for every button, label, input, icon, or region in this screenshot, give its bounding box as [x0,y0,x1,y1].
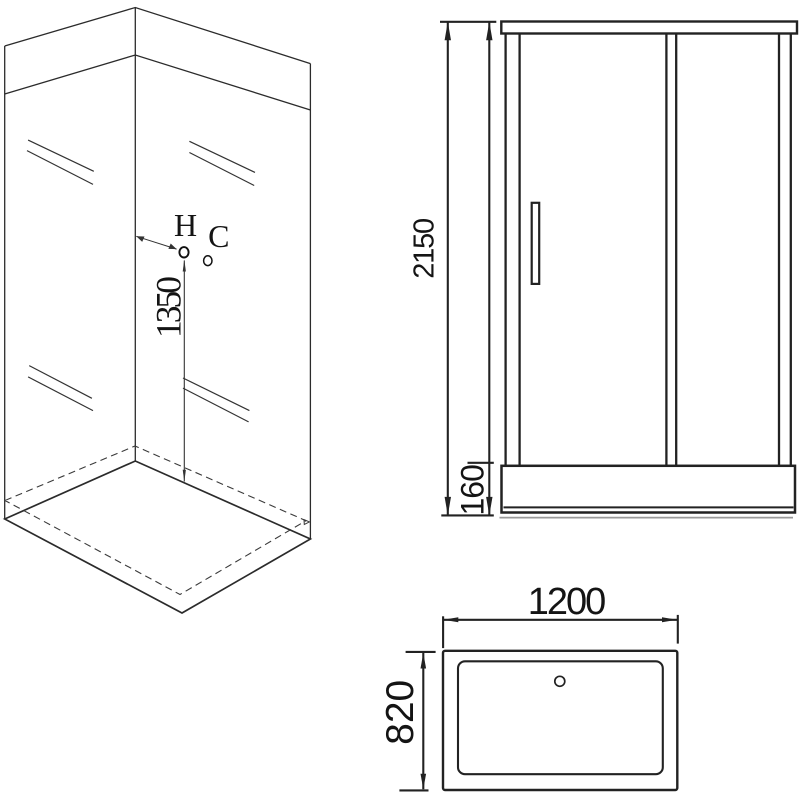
svg-text:1350: 1350 [149,277,189,338]
svg-text:2150: 2150 [409,219,441,279]
svg-text:H: H [174,207,197,243]
svg-text:1200: 1200 [528,581,605,623]
svg-text:820: 820 [379,680,422,745]
svg-text:C: C [208,218,229,254]
svg-text:160: 160 [455,465,491,516]
